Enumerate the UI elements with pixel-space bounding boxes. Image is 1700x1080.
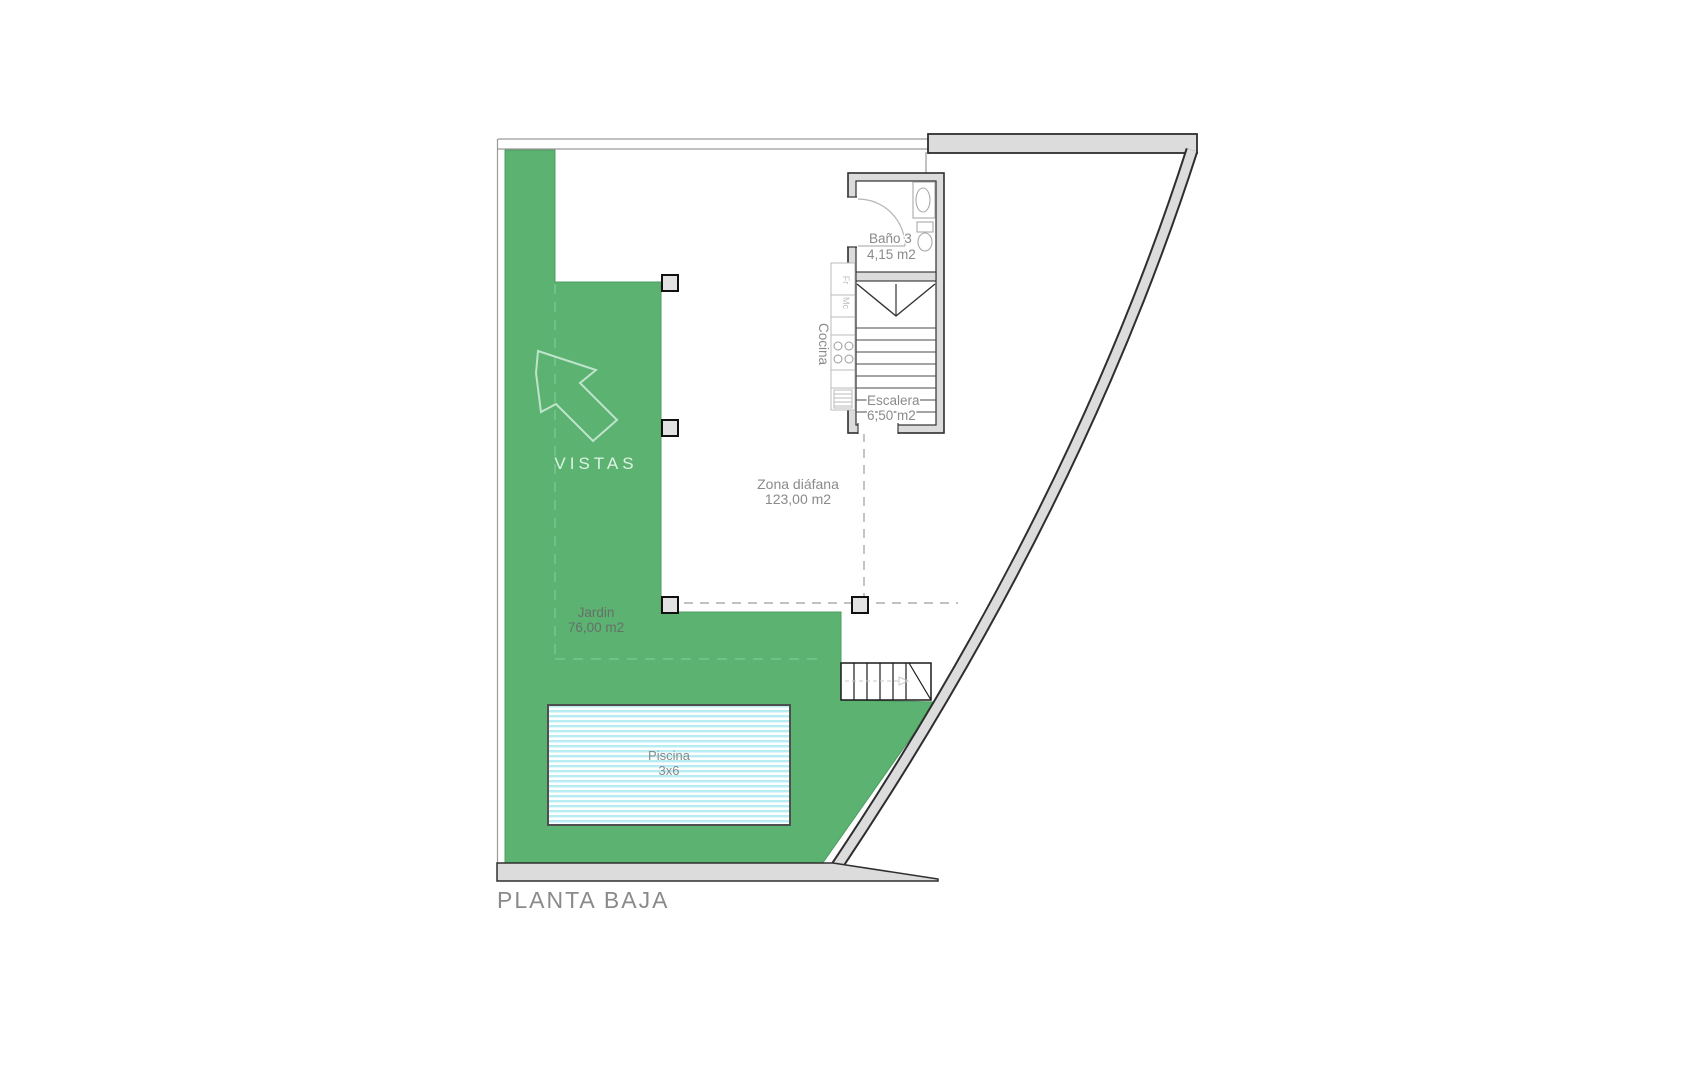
exterior-stairs bbox=[841, 663, 931, 700]
floor-plan-drawing: VISTAS Jardin 76,00 m2 Piscina 3x6 Zona … bbox=[0, 0, 1700, 1080]
bano-label: Baño 3 bbox=[869, 231, 912, 246]
cocina-label: Cocina bbox=[816, 323, 831, 366]
bottom-wall bbox=[497, 863, 938, 881]
pillar bbox=[662, 597, 678, 613]
zona-label: Zona diáfana bbox=[757, 476, 839, 492]
plan-title: PLANTA BAJA bbox=[497, 887, 669, 913]
pool-label: Piscina bbox=[648, 748, 691, 763]
pillar bbox=[662, 420, 678, 436]
kitchen-counter bbox=[831, 263, 855, 410]
zona-area: 123,00 m2 bbox=[765, 491, 831, 507]
top-wall bbox=[928, 134, 1197, 153]
microwave-label: Mc bbox=[841, 297, 851, 309]
escalera-area: 6,50 m2 bbox=[867, 408, 916, 423]
jardin-label: Jardin bbox=[578, 605, 615, 620]
fridge-label: Fr bbox=[841, 276, 851, 285]
pillar bbox=[852, 597, 868, 613]
bano-area: 4,15 m2 bbox=[867, 247, 916, 262]
floor-plan-page: VISTAS Jardin 76,00 m2 Piscina 3x6 Zona … bbox=[0, 0, 1700, 1080]
pillar bbox=[662, 275, 678, 291]
vistas-label: VISTAS bbox=[554, 454, 637, 473]
jardin-area: 76,00 m2 bbox=[568, 620, 624, 635]
escalera-label: Escalera bbox=[867, 393, 920, 408]
pool-size: 3x6 bbox=[659, 763, 680, 778]
zona-dashed-boundary bbox=[668, 433, 958, 603]
